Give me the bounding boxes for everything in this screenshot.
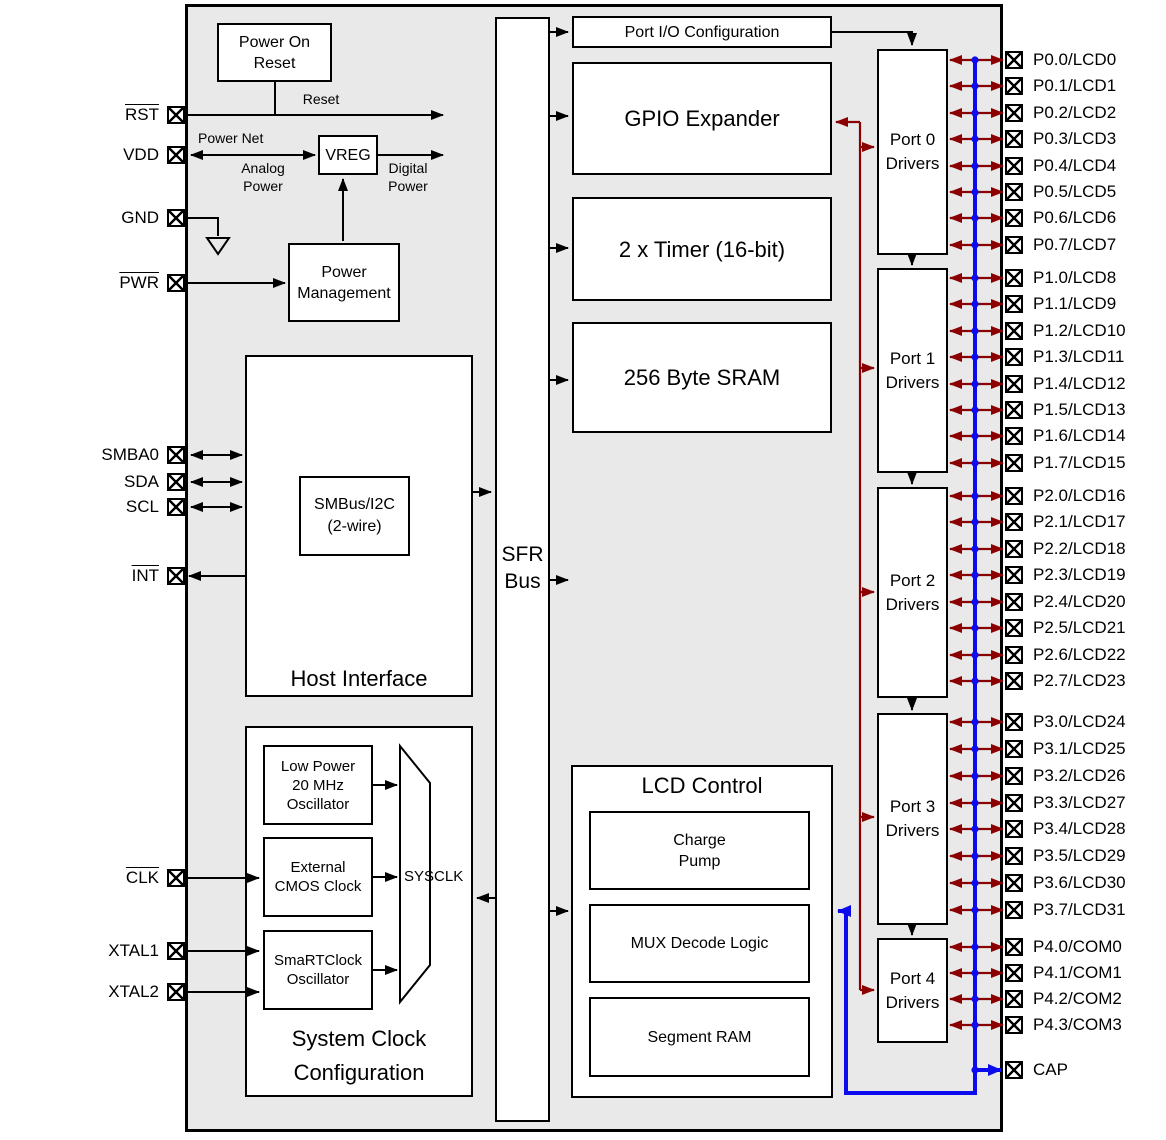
pin-label-scl: SCL [40, 497, 159, 517]
pin-label-clk: CLK [40, 868, 159, 888]
pin-label-p2-1-lcd17: P2.1/LCD17 [1033, 512, 1166, 532]
pin-label-cap: CAP [1033, 1060, 1166, 1080]
pin-label-p3-0-lcd24: P3.0/LCD24 [1033, 712, 1166, 732]
pin-p1-0-lcd8 [1005, 269, 1023, 287]
pin-label-p1-5-lcd13: P1.5/LCD13 [1033, 400, 1166, 420]
pin-smba0 [167, 446, 185, 464]
pin-label-p1-4-lcd12: P1.4/LCD12 [1033, 374, 1166, 394]
pin-p4-0-com0 [1005, 938, 1023, 956]
pin-scl [167, 498, 185, 516]
block-port3-drivers: Port 3 Drivers [877, 713, 948, 925]
pin-label-p4-3-com3: P4.3/COM3 [1033, 1015, 1166, 1035]
pin-label-p0-4-lcd4: P0.4/LCD4 [1033, 156, 1166, 176]
pin-p4-3-com3 [1005, 1016, 1023, 1034]
pin-p0-5-lcd5 [1005, 183, 1023, 201]
pin-label-p3-1-lcd25: P3.1/LCD25 [1033, 739, 1166, 759]
pin-label-xtal1: XTAL1 [40, 941, 159, 961]
pin-label-p2-4-lcd20: P2.4/LCD20 [1033, 592, 1166, 612]
pin-p1-3-lcd11 [1005, 348, 1023, 366]
pin-label-p1-7-lcd15: P1.7/LCD15 [1033, 453, 1166, 473]
pin-p2-7-lcd23 [1005, 672, 1023, 690]
pin-label-p1-1-lcd9: P1.1/LCD9 [1033, 294, 1166, 314]
pin-label-p0-3-lcd3: P0.3/LCD3 [1033, 129, 1166, 149]
pin-label-p1-2-lcd10: P1.2/LCD10 [1033, 321, 1166, 341]
pin-sda [167, 473, 185, 491]
label-reset: Reset [281, 90, 361, 108]
pin-p2-1-lcd17 [1005, 513, 1023, 531]
pin-label-p1-6-lcd14: P1.6/LCD14 [1033, 426, 1166, 446]
pin-p1-5-lcd13 [1005, 401, 1023, 419]
pin-label-xtal2: XTAL2 [40, 982, 159, 1002]
pin-label-p3-7-lcd31: P3.7/LCD31 [1033, 900, 1166, 920]
block-port1-drivers: Port 1 Drivers [877, 268, 948, 473]
pin-label-p3-2-lcd26: P3.2/LCD26 [1033, 766, 1166, 786]
pin-rst [167, 106, 185, 124]
block-smartclock-oscillator: SmaRTClock Oscillator [263, 930, 373, 1010]
block-power-management: Power Management [288, 243, 400, 322]
block-diagram: Power On Reset VREG Power Management Hos… [0, 0, 1166, 1140]
pin-label-p0-1-lcd1: P0.1/LCD1 [1033, 76, 1166, 96]
pin-p3-7-lcd31 [1005, 901, 1023, 919]
pin-p1-4-lcd12 [1005, 375, 1023, 393]
pin-label-p4-2-com2: P4.2/COM2 [1033, 989, 1166, 1009]
pin-int [167, 567, 185, 585]
pin-p4-2-com2 [1005, 990, 1023, 1008]
pin-label-p2-5-lcd21: P2.5/LCD21 [1033, 618, 1166, 638]
pin-label-vdd: VDD [40, 145, 159, 165]
pin-xtal1 [167, 942, 185, 960]
pin-p3-1-lcd25 [1005, 740, 1023, 758]
pin-label-p2-2-lcd18: P2.2/LCD18 [1033, 539, 1166, 559]
pin-pwr [167, 274, 185, 292]
pin-p1-2-lcd10 [1005, 322, 1023, 340]
pin-label-p3-5-lcd29: P3.5/LCD29 [1033, 846, 1166, 866]
pin-p0-2-lcd2 [1005, 104, 1023, 122]
block-port4-drivers: Port 4 Drivers [877, 938, 948, 1043]
block-external-cmos-clock: External CMOS Clock [263, 837, 373, 917]
pin-p0-4-lcd4 [1005, 157, 1023, 175]
pin-label-smba0: SMBA0 [40, 445, 159, 465]
pin-p2-5-lcd21 [1005, 619, 1023, 637]
pin-label-p0-5-lcd5: P0.5/LCD5 [1033, 182, 1166, 202]
block-timer: 2 x Timer (16-bit) [572, 197, 832, 301]
pin-label-p3-3-lcd27: P3.3/LCD27 [1033, 793, 1166, 813]
pin-gnd [167, 209, 185, 227]
block-gpio-expander: GPIO Expander [572, 62, 832, 175]
pin-p3-0-lcd24 [1005, 713, 1023, 731]
pin-p1-1-lcd9 [1005, 295, 1023, 313]
pin-label-p0-0-lcd0: P0.0/LCD0 [1033, 50, 1166, 70]
label-power-net: Power Net [198, 129, 263, 147]
block-smbus-i2c: SMBus/I2C (2-wire) [299, 476, 410, 556]
block-charge-pump: Charge Pump [589, 811, 810, 890]
label-digital-power: Digital Power [368, 159, 448, 195]
pin-label-p0-2-lcd2: P0.2/LCD2 [1033, 103, 1166, 123]
block-sfr-bus: SFR Bus [495, 17, 550, 1122]
pin-p2-4-lcd20 [1005, 593, 1023, 611]
pin-label-p1-0-lcd8: P1.0/LCD8 [1033, 268, 1166, 288]
pin-label-sda: SDA [40, 472, 159, 492]
pin-label-p0-6-lcd6: P0.6/LCD6 [1033, 208, 1166, 228]
pin-label-p4-1-com1: P4.1/COM1 [1033, 963, 1166, 983]
pin-label-p4-0-com0: P4.0/COM0 [1033, 937, 1166, 957]
pin-p2-6-lcd22 [1005, 646, 1023, 664]
pin-p0-7-lcd7 [1005, 236, 1023, 254]
pin-p1-7-lcd15 [1005, 454, 1023, 472]
pin-label-p1-3-lcd11: P1.3/LCD11 [1033, 347, 1166, 367]
pin-p4-1-com1 [1005, 964, 1023, 982]
pin-p0-1-lcd1 [1005, 77, 1023, 95]
pin-label-gnd: GND [40, 208, 159, 228]
pin-label-p3-6-lcd30: P3.6/LCD30 [1033, 873, 1166, 893]
pin-label-p2-0-lcd16: P2.0/LCD16 [1033, 486, 1166, 506]
pin-vdd [167, 146, 185, 164]
pin-label-pwr: PWR [40, 273, 159, 293]
pin-label-p0-7-lcd7: P0.7/LCD7 [1033, 235, 1166, 255]
block-sram: 256 Byte SRAM [572, 322, 832, 433]
pin-label-p3-4-lcd28: P3.4/LCD28 [1033, 819, 1166, 839]
pin-label-rst: RST [40, 105, 159, 125]
label-analog-power: Analog Power [223, 159, 303, 195]
pin-p3-3-lcd27 [1005, 794, 1023, 812]
block-power-on-reset: Power On Reset [217, 23, 332, 82]
pin-p0-3-lcd3 [1005, 130, 1023, 148]
pin-p3-6-lcd30 [1005, 874, 1023, 892]
pin-label-p2-7-lcd23: P2.7/LCD23 [1033, 671, 1166, 691]
pin-xtal2 [167, 983, 185, 1001]
pin-p2-0-lcd16 [1005, 487, 1023, 505]
pin-label-p2-6-lcd22: P2.6/LCD22 [1033, 645, 1166, 665]
pin-p3-4-lcd28 [1005, 820, 1023, 838]
pin-p3-5-lcd29 [1005, 847, 1023, 865]
block-low-power-oscillator: Low Power 20 MHz Oscillator [263, 745, 373, 825]
pin-p2-2-lcd18 [1005, 540, 1023, 558]
block-port-io-configuration: Port I/O Configuration [572, 16, 832, 48]
pin-p0-0-lcd0 [1005, 51, 1023, 69]
pin-p2-3-lcd19 [1005, 566, 1023, 584]
block-mux-decode-logic: MUX Decode Logic [589, 904, 810, 983]
sysclk-mux-label: SYSCLK [404, 868, 463, 886]
block-segment-ram: Segment RAM [589, 997, 810, 1077]
pin-label-int: INT [40, 566, 159, 586]
block-port2-drivers: Port 2 Drivers [877, 487, 948, 698]
block-port0-drivers: Port 0 Drivers [877, 49, 948, 255]
pin-clk [167, 869, 185, 887]
pin-cap [1005, 1061, 1023, 1079]
pin-label-p2-3-lcd19: P2.3/LCD19 [1033, 565, 1166, 585]
pin-p3-2-lcd26 [1005, 767, 1023, 785]
pin-p0-6-lcd6 [1005, 209, 1023, 227]
pin-p1-6-lcd14 [1005, 427, 1023, 445]
